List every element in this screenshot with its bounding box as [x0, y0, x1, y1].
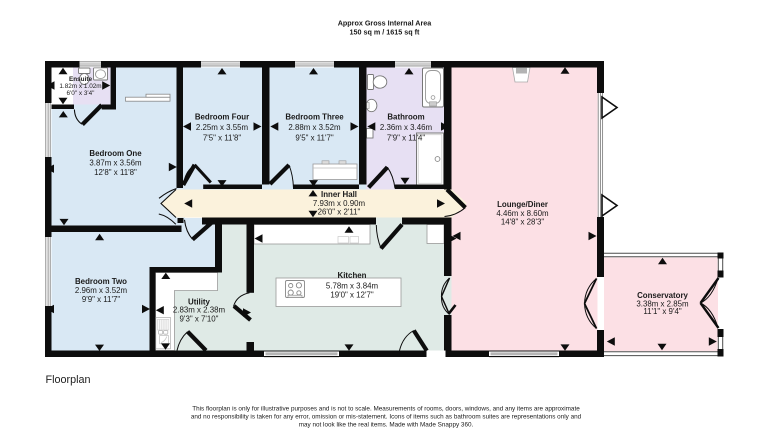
svg-text:Approx Gross Internal Area: Approx Gross Internal Area — [338, 18, 433, 27]
svg-text:2.96m x 3.52m: 2.96m x 3.52m — [75, 286, 128, 295]
svg-text:may not look like the real ite: may not look like the real items. Made w… — [299, 421, 474, 428]
svg-text:and no responsibility is taken: and no responsibility is taken for any e… — [191, 414, 582, 421]
svg-text:9'9" x 11'7": 9'9" x 11'7" — [82, 295, 120, 304]
svg-text:Bedroom Two: Bedroom Two — [75, 277, 127, 286]
svg-text:6'0" x 3'4": 6'0" x 3'4" — [67, 90, 95, 97]
svg-text:Ensuite: Ensuite — [69, 76, 93, 83]
svg-text:Floorplan: Floorplan — [46, 374, 91, 386]
svg-text:Lounge/Diner: Lounge/Diner — [497, 200, 548, 209]
svg-text:14'8" x 28'3": 14'8" x 28'3" — [501, 218, 544, 227]
svg-text:1.82m x 1.02m: 1.82m x 1.02m — [59, 83, 101, 90]
svg-text:26'0" x 2'11": 26'0" x 2'11" — [318, 208, 361, 217]
svg-text:3.87m x 3.56m: 3.87m x 3.56m — [89, 158, 142, 167]
svg-text:Bedroom One: Bedroom One — [89, 149, 142, 158]
svg-text:5.78m x 3.84m: 5.78m x 3.84m — [326, 281, 379, 290]
svg-text:150 sq m / 1615 sq ft: 150 sq m / 1615 sq ft — [350, 28, 421, 37]
svg-text:Bedroom Four: Bedroom Four — [195, 113, 249, 122]
svg-text:12'8" x 11'8": 12'8" x 11'8" — [94, 168, 137, 177]
svg-text:19'0" x 12'7": 19'0" x 12'7" — [330, 291, 373, 300]
svg-text:2.25m x 3.55m: 2.25m x 3.55m — [196, 123, 249, 132]
svg-text:9'5" x 11'7": 9'5" x 11'7" — [295, 134, 333, 143]
svg-text:Inner Hall: Inner Hall — [321, 190, 357, 199]
svg-text:7'9" x 11'4": 7'9" x 11'4" — [387, 134, 425, 143]
svg-text:Bathroom: Bathroom — [387, 113, 424, 122]
svg-text:Bedroom Three: Bedroom Three — [285, 113, 344, 122]
svg-text:Kitchen: Kitchen — [338, 271, 367, 280]
svg-text:7.93m x 0.90m: 7.93m x 0.90m — [313, 199, 366, 208]
svg-text:7'5" x 11'8": 7'5" x 11'8" — [203, 134, 241, 143]
svg-text:11'1" x 9'4": 11'1" x 9'4" — [643, 307, 681, 316]
svg-text:2.88m x 3.52m: 2.88m x 3.52m — [288, 123, 341, 132]
svg-text:9'3" x 7'10": 9'3" x 7'10" — [180, 314, 219, 323]
svg-text:2.36m x 3.46m: 2.36m x 3.46m — [380, 123, 433, 132]
svg-text:This floorplan is only for ill: This floorplan is only for illustrative … — [192, 406, 580, 413]
svg-text:2.83m x 2.38m: 2.83m x 2.38m — [173, 306, 226, 315]
